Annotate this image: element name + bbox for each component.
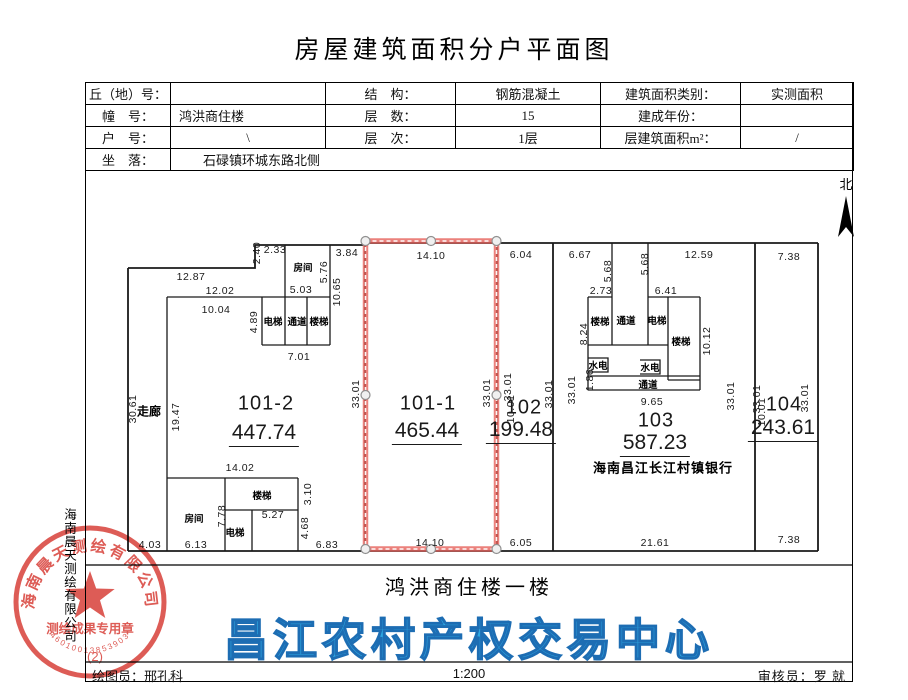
handle-bottom-mid[interactable] bbox=[427, 545, 436, 554]
stamp-suffix: (2) bbox=[87, 649, 103, 664]
stamp-type-text: 测绘成果专用章 bbox=[46, 621, 134, 636]
handle-bottom-left[interactable] bbox=[361, 545, 370, 554]
handle-top-mid[interactable] bbox=[427, 237, 436, 246]
north-arrow-icon bbox=[838, 196, 854, 237]
selected-parcel-101-1[interactable] bbox=[361, 237, 501, 554]
selection-handles[interactable] bbox=[361, 237, 501, 554]
north-label: 北 bbox=[839, 177, 852, 192]
handle-top-left[interactable] bbox=[361, 237, 370, 246]
handle-bottom-right[interactable] bbox=[492, 545, 501, 554]
selection-rectangle[interactable] bbox=[366, 241, 497, 549]
reviewer-credit: 审核员：罗 就 bbox=[758, 666, 846, 685]
company-seal-stamp: 海南晨天测绘有限公司 测绘成果专用章 46010013853903 (2) bbox=[5, 517, 175, 687]
selection-dash bbox=[366, 241, 497, 549]
drawing-scale: 1:200 bbox=[85, 666, 853, 681]
handle-top-right[interactable] bbox=[492, 237, 501, 246]
north-arrow: 北 bbox=[838, 177, 854, 237]
watermark-text: 昌江农村产权交易中心 bbox=[85, 604, 853, 668]
building-walls bbox=[128, 243, 818, 551]
handle-mid-left[interactable] bbox=[361, 391, 370, 400]
plan-caption: 鸿洪商住楼一楼 bbox=[85, 571, 853, 600]
handle-mid-right[interactable] bbox=[492, 391, 501, 400]
stamp-star-icon bbox=[65, 571, 114, 618]
